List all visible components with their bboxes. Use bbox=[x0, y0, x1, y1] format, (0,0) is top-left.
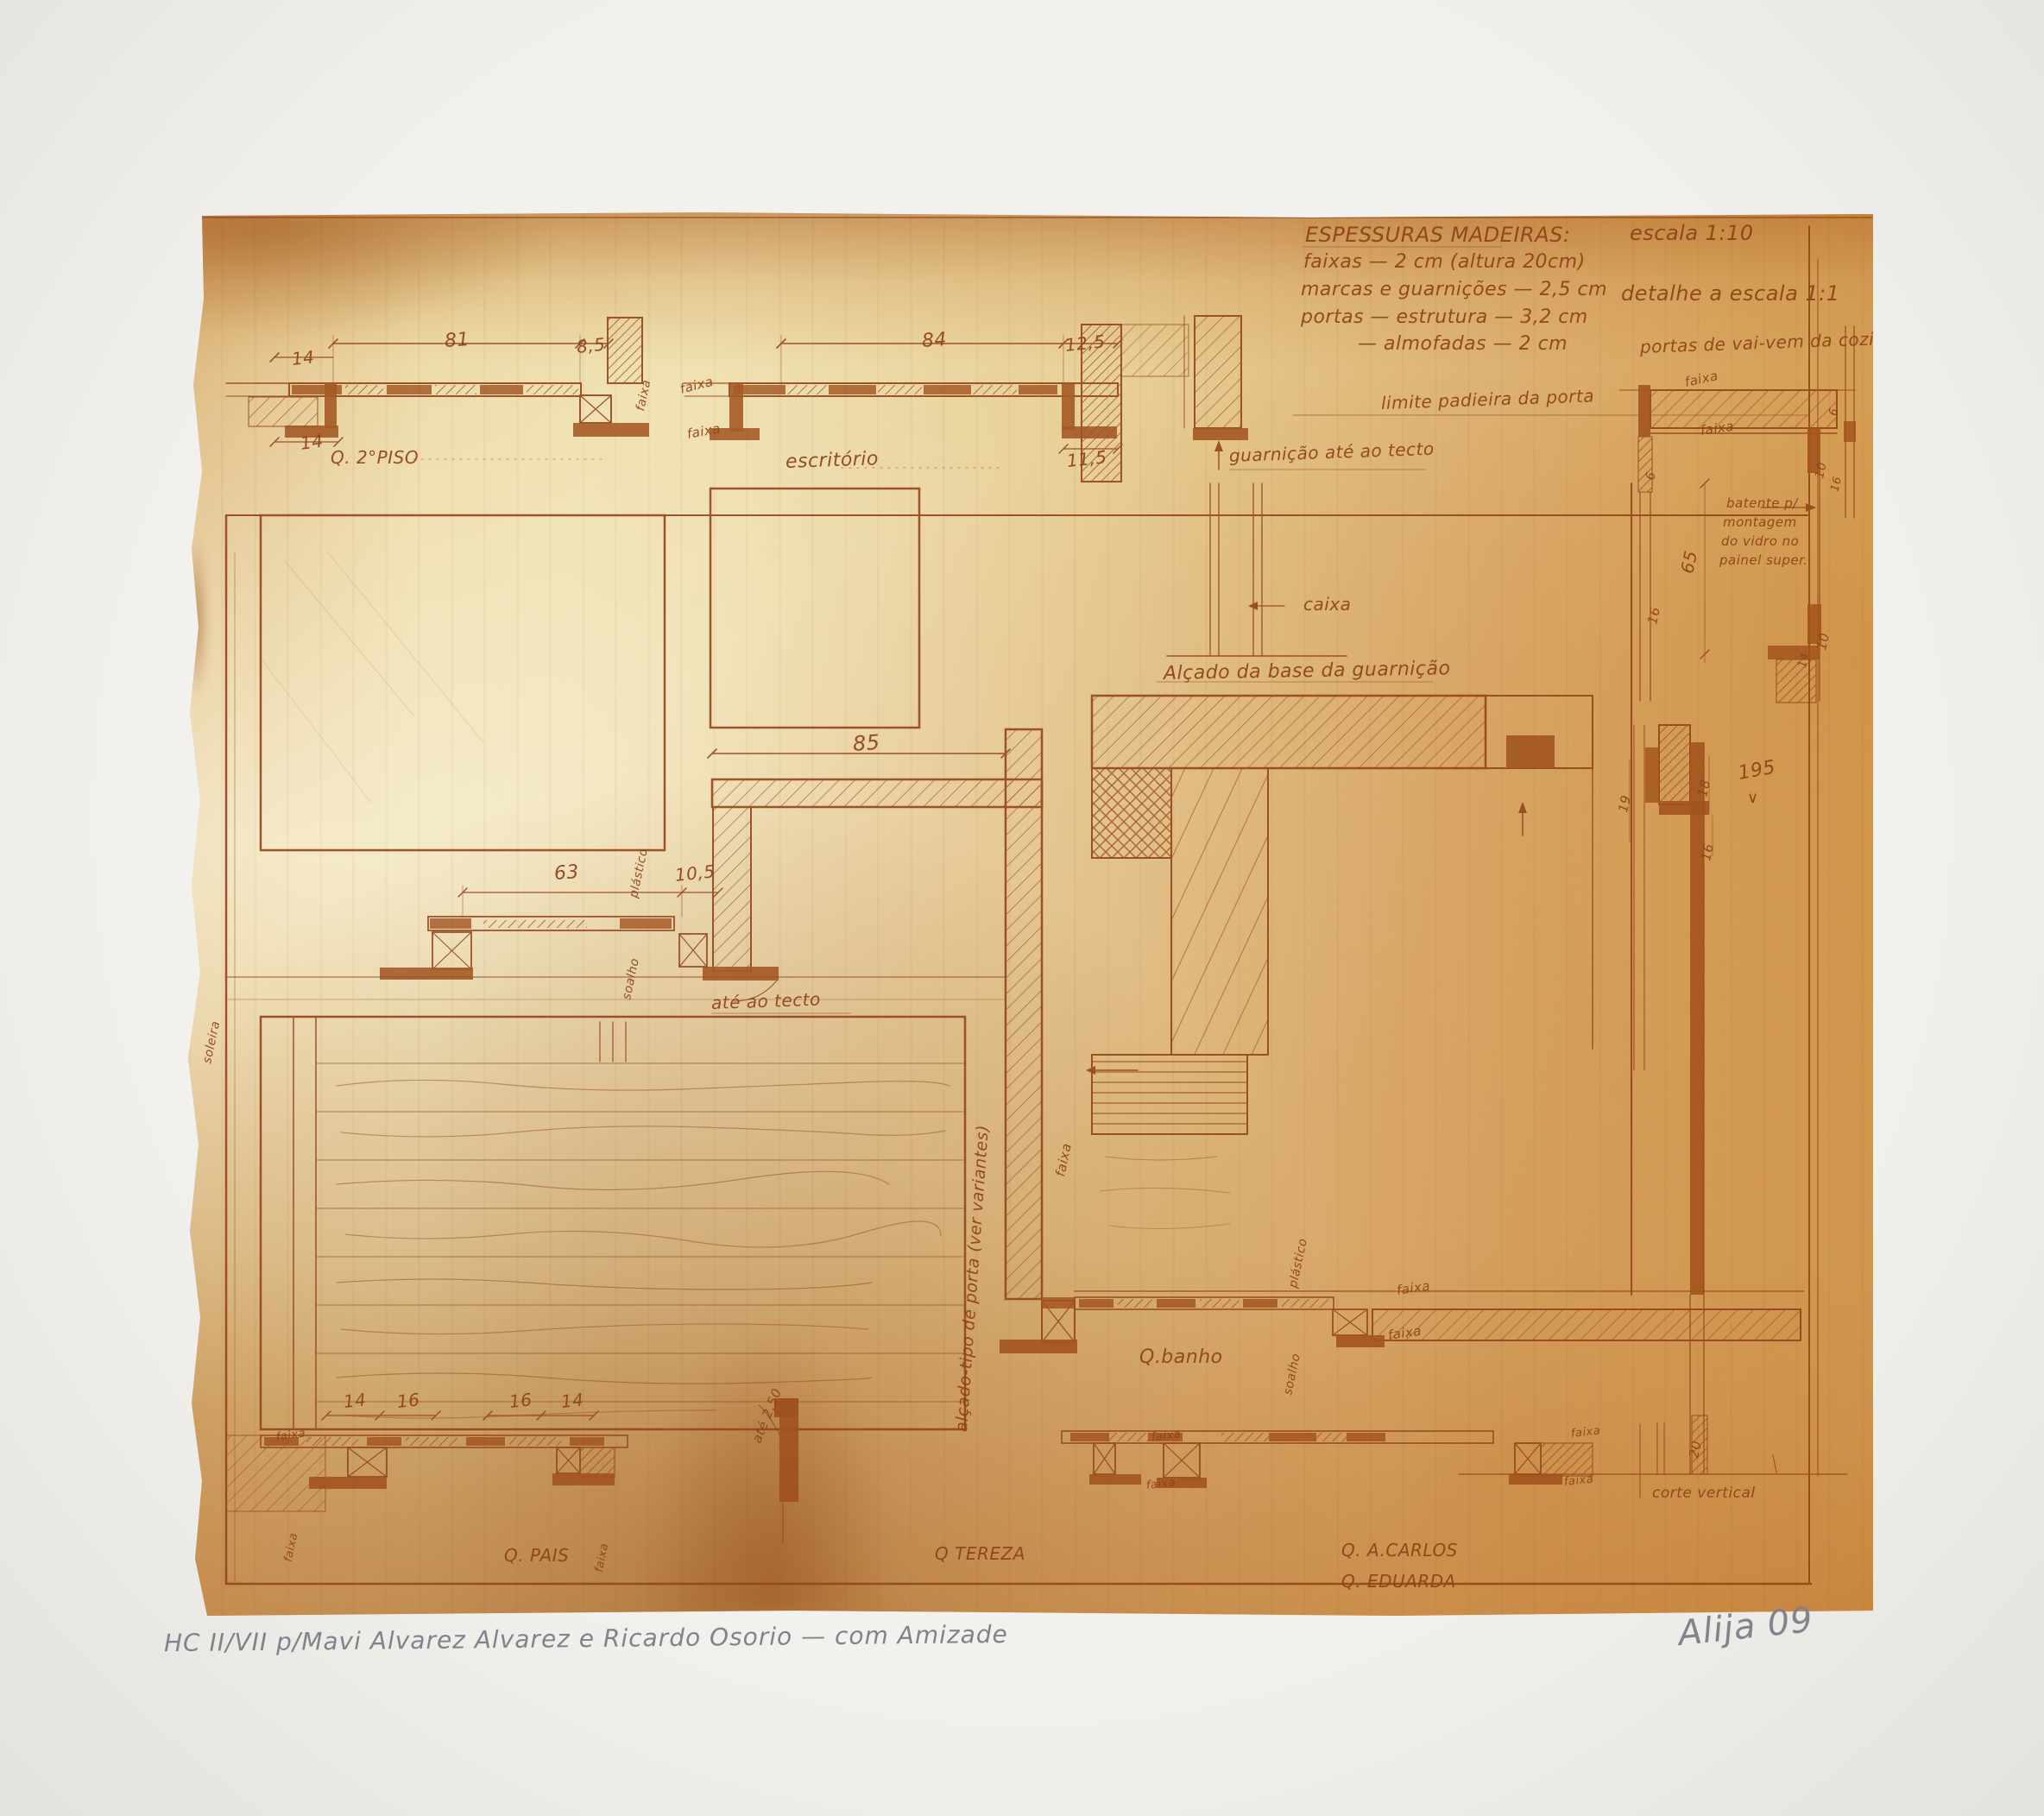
note-plastico: plástico bbox=[1286, 1237, 1310, 1289]
title-block-spec: portas — estrutura — 3,2 cm bbox=[1301, 306, 1588, 328]
dim-label: 14 bbox=[299, 430, 325, 453]
room-label-escritorio: escritório bbox=[785, 448, 880, 473]
note-plastico: plástico bbox=[627, 847, 651, 899]
dim-label: 8,5 bbox=[576, 334, 607, 357]
note-faixa: faixa bbox=[678, 374, 715, 397]
photograph-of-print: ESPESSURAS MADEIRAS: faixas — 2 cm (altu… bbox=[0, 0, 2044, 1816]
note-faixa: faixa bbox=[1563, 1472, 1594, 1489]
title-block-spec: marcas e guarnições — 2,5 cm bbox=[1301, 279, 1607, 300]
dim-label: 16 bbox=[396, 1389, 421, 1412]
dim-label: 16 bbox=[1698, 842, 1717, 861]
note-faixa: faixa bbox=[1683, 368, 1719, 390]
note-soalho: soalho bbox=[620, 957, 642, 1001]
note-faixa: faixa bbox=[593, 1542, 612, 1573]
room-label-pais: Q. PAIS bbox=[504, 1545, 569, 1566]
note-faixa: faixa bbox=[685, 420, 722, 442]
dim-label: 16 bbox=[1644, 605, 1663, 625]
note-batente: painel super. bbox=[1719, 552, 1808, 568]
note-ate-ao-tecto: até ao tecto bbox=[711, 989, 822, 1013]
arrow-down-glyph: ∨ bbox=[1747, 789, 1759, 807]
dim-label: 11,5 bbox=[1066, 446, 1108, 471]
note-limite-padieira: limite padieira da porta bbox=[1381, 385, 1595, 413]
note-soalho: soalho bbox=[1281, 1353, 1303, 1397]
dim-label: 63 bbox=[553, 861, 580, 885]
dim-label: 12,5 bbox=[1064, 331, 1107, 356]
title-block-spec: — almofadas — 2 cm bbox=[1358, 333, 1568, 355]
room-label-eduarda: Q. EDUARDA bbox=[1341, 1571, 1456, 1592]
note-faixa: faixa bbox=[1396, 1278, 1431, 1298]
dim-label: 65 bbox=[1676, 549, 1701, 576]
room-label-2piso: Q. 2°PISO bbox=[331, 447, 419, 468]
note-portas-vai-vem: portas de vai-vem da cozinha bbox=[1640, 327, 1908, 357]
stain-top-left bbox=[188, 212, 558, 338]
dim-label: 14 bbox=[343, 1389, 368, 1412]
title-block-title: ESPESSURAS MADEIRAS: bbox=[1305, 223, 1570, 247]
detail-scale-note: detalhe a escala 1:1 bbox=[1621, 281, 1840, 306]
dim-label: 6 bbox=[1827, 407, 1841, 417]
dim-label: 16 bbox=[508, 1389, 533, 1412]
note-faixa: faixa bbox=[1151, 1428, 1182, 1444]
note-batente: montagem bbox=[1723, 514, 1797, 530]
scale-note: escala 1:10 bbox=[1630, 221, 1754, 245]
dim-label: 10,5 bbox=[674, 861, 716, 886]
note-batente: batente p/ bbox=[1726, 495, 1798, 511]
note-faixa: faixa bbox=[1570, 1424, 1601, 1441]
note-faixa: faixa bbox=[634, 378, 653, 412]
room-label-tereza: Q TEREZA bbox=[935, 1543, 1025, 1564]
stain-bottom-center bbox=[643, 1321, 896, 1616]
dim-label: 10 bbox=[1813, 461, 1830, 480]
note-faixa: faixa bbox=[282, 1531, 301, 1563]
note-guarnicao: guarnição até ao tecto bbox=[1229, 438, 1435, 466]
note-faixa: faixa bbox=[1387, 1323, 1423, 1343]
note-ate-250: até 2,50 bbox=[749, 1386, 785, 1445]
dim-label: 20 bbox=[1686, 1439, 1705, 1459]
dim-label: 14 bbox=[1796, 652, 1812, 669]
dim-label: 84 bbox=[921, 329, 948, 352]
title-block-spec: faixas — 2 cm (altura 20cm) bbox=[1303, 251, 1586, 273]
dim-label: 14 bbox=[291, 346, 316, 369]
dim-label: 16 bbox=[1829, 476, 1845, 493]
dim-label: 10 bbox=[1814, 631, 1833, 651]
room-label-a-carlos: Q. A.CARLOS bbox=[1341, 1540, 1458, 1561]
dim-label: 195 bbox=[1737, 757, 1777, 785]
note-batente: do vidro no bbox=[1721, 533, 1799, 549]
note-alcado-tipo-porta: alçado-tipo de porta (ver variantes) bbox=[952, 1124, 993, 1432]
etching-print-sheet: ESPESSURAS MADEIRAS: faixas — 2 cm (altu… bbox=[188, 212, 1873, 1616]
dim-label: 81 bbox=[444, 329, 470, 352]
note-faixa: faixa bbox=[275, 1427, 306, 1444]
dim-label: 19 bbox=[1615, 793, 1634, 813]
dim-label: 6 bbox=[1643, 470, 1659, 482]
note-faixa: faixa bbox=[1700, 419, 1735, 438]
dim-label: 18 bbox=[1694, 778, 1713, 798]
note-caixa: caixa bbox=[1303, 594, 1351, 615]
note-corte-vertical: corte vertical bbox=[1652, 1485, 1756, 1502]
note-soleira: soleira bbox=[200, 1019, 223, 1064]
dim-label: 85 bbox=[852, 730, 880, 756]
note-faixa: faixa bbox=[1052, 1142, 1075, 1178]
note-faixa: faixa bbox=[1145, 1476, 1177, 1492]
dim-label: 14 bbox=[560, 1389, 585, 1412]
note-alcado-base: Alçado da base da guarnição bbox=[1164, 658, 1451, 684]
room-label-banho: Q.banho bbox=[1139, 1346, 1223, 1368]
